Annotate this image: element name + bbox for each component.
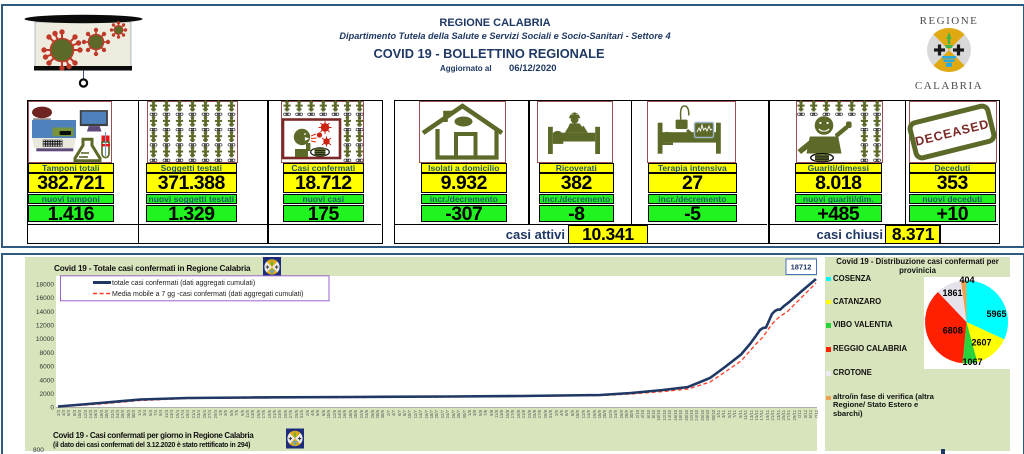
svg-text:3/4: 3/4 xyxy=(142,409,147,416)
svg-text:3/11: 3/11 xyxy=(721,409,726,418)
svg-text:13/4: 13/4 xyxy=(169,409,174,418)
svg-text:30/9: 30/9 xyxy=(629,409,634,418)
svg-text:14/7: 14/7 xyxy=(418,409,423,418)
svg-text:17/5: 17/5 xyxy=(261,409,266,418)
svg-text:14/10: 14/10 xyxy=(667,409,672,420)
svg-text:24/10: 24/10 xyxy=(694,409,699,420)
svg-text:10/9: 10/9 xyxy=(575,409,580,418)
svg-text:12000: 12000 xyxy=(36,323,54,330)
svg-text:21/11: 21/11 xyxy=(770,409,775,420)
svg-text:23/5: 23/5 xyxy=(277,409,282,418)
svg-text:31/8: 31/8 xyxy=(548,409,553,418)
svg-text:16/3: 16/3 xyxy=(93,409,98,418)
svg-text:24/6: 24/6 xyxy=(364,409,369,418)
svg-text:6/9: 6/9 xyxy=(564,409,569,416)
svg-text:5965: 5965 xyxy=(986,309,1006,319)
svg-text:404: 404 xyxy=(959,275,974,285)
svg-text:30/6: 30/6 xyxy=(380,409,385,418)
svg-text:26/3: 26/3 xyxy=(120,409,125,418)
svg-text:7/5: 7/5 xyxy=(234,409,239,416)
svg-text:27/4: 27/4 xyxy=(207,409,212,418)
svg-text:17/11: 17/11 xyxy=(759,409,764,420)
svg-text:5/12: 5/12 xyxy=(808,409,813,418)
svg-text:27/11: 27/11 xyxy=(786,409,791,420)
svg-text:27/5: 27/5 xyxy=(288,409,293,418)
svg-text:9/4: 9/4 xyxy=(158,409,163,416)
svg-text:7/8: 7/8 xyxy=(483,409,488,416)
svg-text:8000: 8000 xyxy=(40,350,55,357)
svg-text:13/5: 13/5 xyxy=(250,409,255,418)
svg-text:30/3: 30/3 xyxy=(131,409,136,418)
svg-text:2000: 2000 xyxy=(40,391,55,398)
svg-text:1861: 1861 xyxy=(942,288,962,298)
svg-text:totale casi confermati (dati a: totale casi confermati (dati aggregati c… xyxy=(112,280,255,287)
svg-text:14000: 14000 xyxy=(36,309,54,316)
svg-text:21/8: 21/8 xyxy=(521,409,526,418)
svg-text:10/7: 10/7 xyxy=(407,409,412,418)
svg-text:6000: 6000 xyxy=(40,364,55,371)
svg-text:14/9: 14/9 xyxy=(586,409,591,418)
svg-text:16000: 16000 xyxy=(36,295,54,302)
svg-text:17/8: 17/8 xyxy=(510,409,515,418)
svg-text:1/12: 1/12 xyxy=(797,409,802,418)
svg-text:28/10: 28/10 xyxy=(705,409,710,420)
svg-text:20/7: 20/7 xyxy=(434,409,439,418)
svg-text:24/7: 24/7 xyxy=(445,409,450,418)
svg-text:4/7: 4/7 xyxy=(391,409,396,416)
svg-text:4000: 4000 xyxy=(40,377,55,384)
svg-text:19/4: 19/4 xyxy=(185,409,190,418)
svg-text:1067: 1067 xyxy=(962,357,982,367)
svg-text:18000: 18000 xyxy=(36,282,54,289)
svg-text:16/6: 16/6 xyxy=(342,409,347,418)
svg-text:10/6: 10/6 xyxy=(326,409,331,418)
svg-text:4/10: 4/10 xyxy=(640,409,645,418)
svg-text:31/5: 31/5 xyxy=(299,409,304,418)
svg-text:6/6: 6/6 xyxy=(315,409,320,416)
svg-text:6808: 6808 xyxy=(943,326,963,336)
svg-text:3/5: 3/5 xyxy=(223,409,228,416)
svg-text:20/9: 20/9 xyxy=(602,409,607,418)
svg-text:28/7: 28/7 xyxy=(456,409,461,418)
svg-text:18/10: 18/10 xyxy=(678,409,683,420)
svg-text:24/9: 24/9 xyxy=(613,409,618,418)
svg-text:20/6: 20/6 xyxy=(353,409,358,418)
svg-text:Media mobile a 7 gg -casi conf: Media mobile a 7 gg -casi confermati (da… xyxy=(112,291,303,298)
svg-text:2607: 2607 xyxy=(971,338,991,348)
svg-text:13/8: 13/8 xyxy=(499,409,504,418)
svg-text:11/11: 11/11 xyxy=(743,409,748,420)
svg-text:7/12: 7/12 xyxy=(814,409,819,418)
svg-text:18712: 18712 xyxy=(791,263,812,272)
svg-text:10/3: 10/3 xyxy=(77,409,82,418)
svg-text:3/8: 3/8 xyxy=(472,409,477,416)
svg-text:27/8: 27/8 xyxy=(537,409,542,418)
svg-text:7/11: 7/11 xyxy=(732,409,737,418)
svg-text:10000: 10000 xyxy=(36,336,54,343)
svg-text:0: 0 xyxy=(50,405,54,412)
svg-text:6/3: 6/3 xyxy=(66,409,71,416)
svg-text:20/3: 20/3 xyxy=(104,409,109,418)
svg-text:23/4: 23/4 xyxy=(196,409,201,418)
svg-text:10/10: 10/10 xyxy=(656,409,661,420)
